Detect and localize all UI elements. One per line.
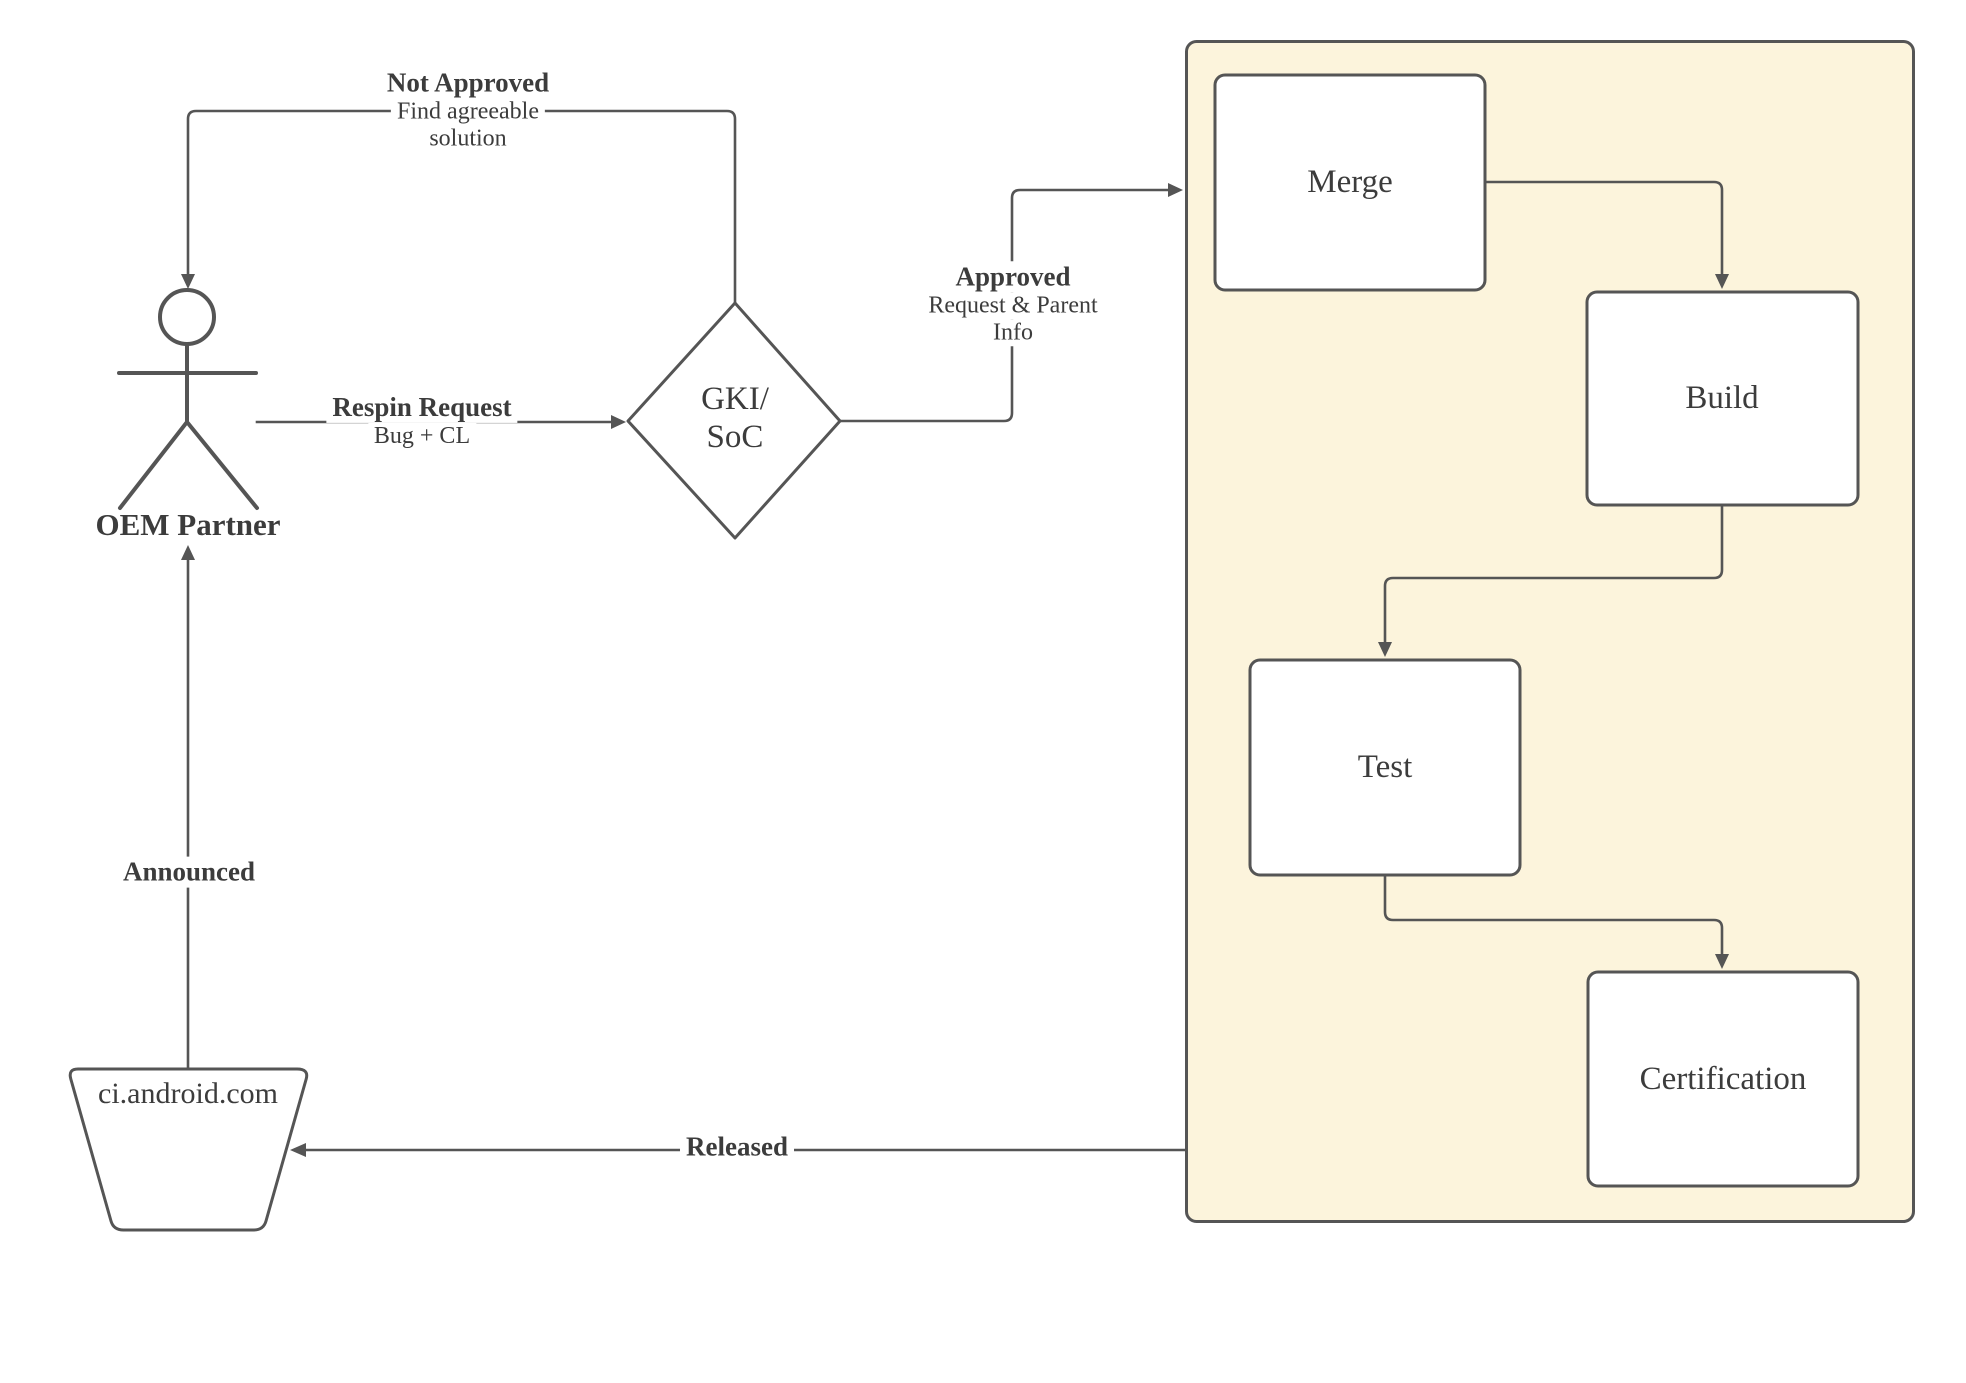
not-approved-subtitle-line1: Find agreeable — [391, 98, 545, 125]
arrowhead-down-icon — [181, 274, 195, 289]
oem-partner-label: OEM Partner — [95, 507, 280, 543]
actor-head — [160, 290, 214, 344]
edge-announced — [181, 545, 195, 1069]
build-node-label: Build — [1685, 380, 1758, 418]
gki-soc-label-line2: SoC — [707, 419, 764, 457]
arrowhead-left-icon — [290, 1143, 306, 1157]
flowchart-graphics — [0, 0, 1966, 1383]
diagram-canvas: Not Approved Find agreeable solution Res… — [0, 0, 1966, 1383]
respin-request-edge-label: Respin Request Bug + CL — [326, 392, 517, 450]
respin-request-subtitle: Bug + CL — [368, 423, 476, 450]
arrowhead-right-icon — [611, 415, 626, 429]
not-approved-title: Not Approved — [381, 67, 555, 98]
certification-node-label: Certification — [1640, 1061, 1807, 1099]
arrowhead-right-icon — [1168, 183, 1183, 197]
released-edge-label: Released — [680, 1132, 794, 1163]
approved-subtitle-line2: Info — [987, 319, 1039, 346]
ci-android-label: ci.android.com — [98, 1077, 278, 1111]
gki-soc-label: GKI/ SoC — [701, 381, 769, 457]
not-approved-edge-label: Not Approved Find agreeable solution — [381, 67, 555, 152]
not-approved-subtitle-line2: solution — [423, 125, 512, 152]
arrowhead-up-icon — [181, 545, 195, 560]
announced-edge-label: Announced — [117, 857, 261, 888]
released-title: Released — [680, 1132, 794, 1163]
approved-edge-label: Approved Request & Parent Info — [922, 261, 1103, 346]
respin-request-title: Respin Request — [326, 392, 517, 423]
merge-node-label: Merge — [1307, 164, 1393, 202]
oem-partner-actor-figure — [119, 290, 257, 508]
approved-subtitle-line1: Request & Parent — [922, 292, 1103, 319]
actor-legs — [120, 422, 257, 508]
test-node-label: Test — [1358, 749, 1413, 787]
gki-soc-label-line1: GKI/ — [701, 381, 769, 419]
announced-title: Announced — [117, 857, 261, 888]
approved-title: Approved — [949, 261, 1076, 292]
